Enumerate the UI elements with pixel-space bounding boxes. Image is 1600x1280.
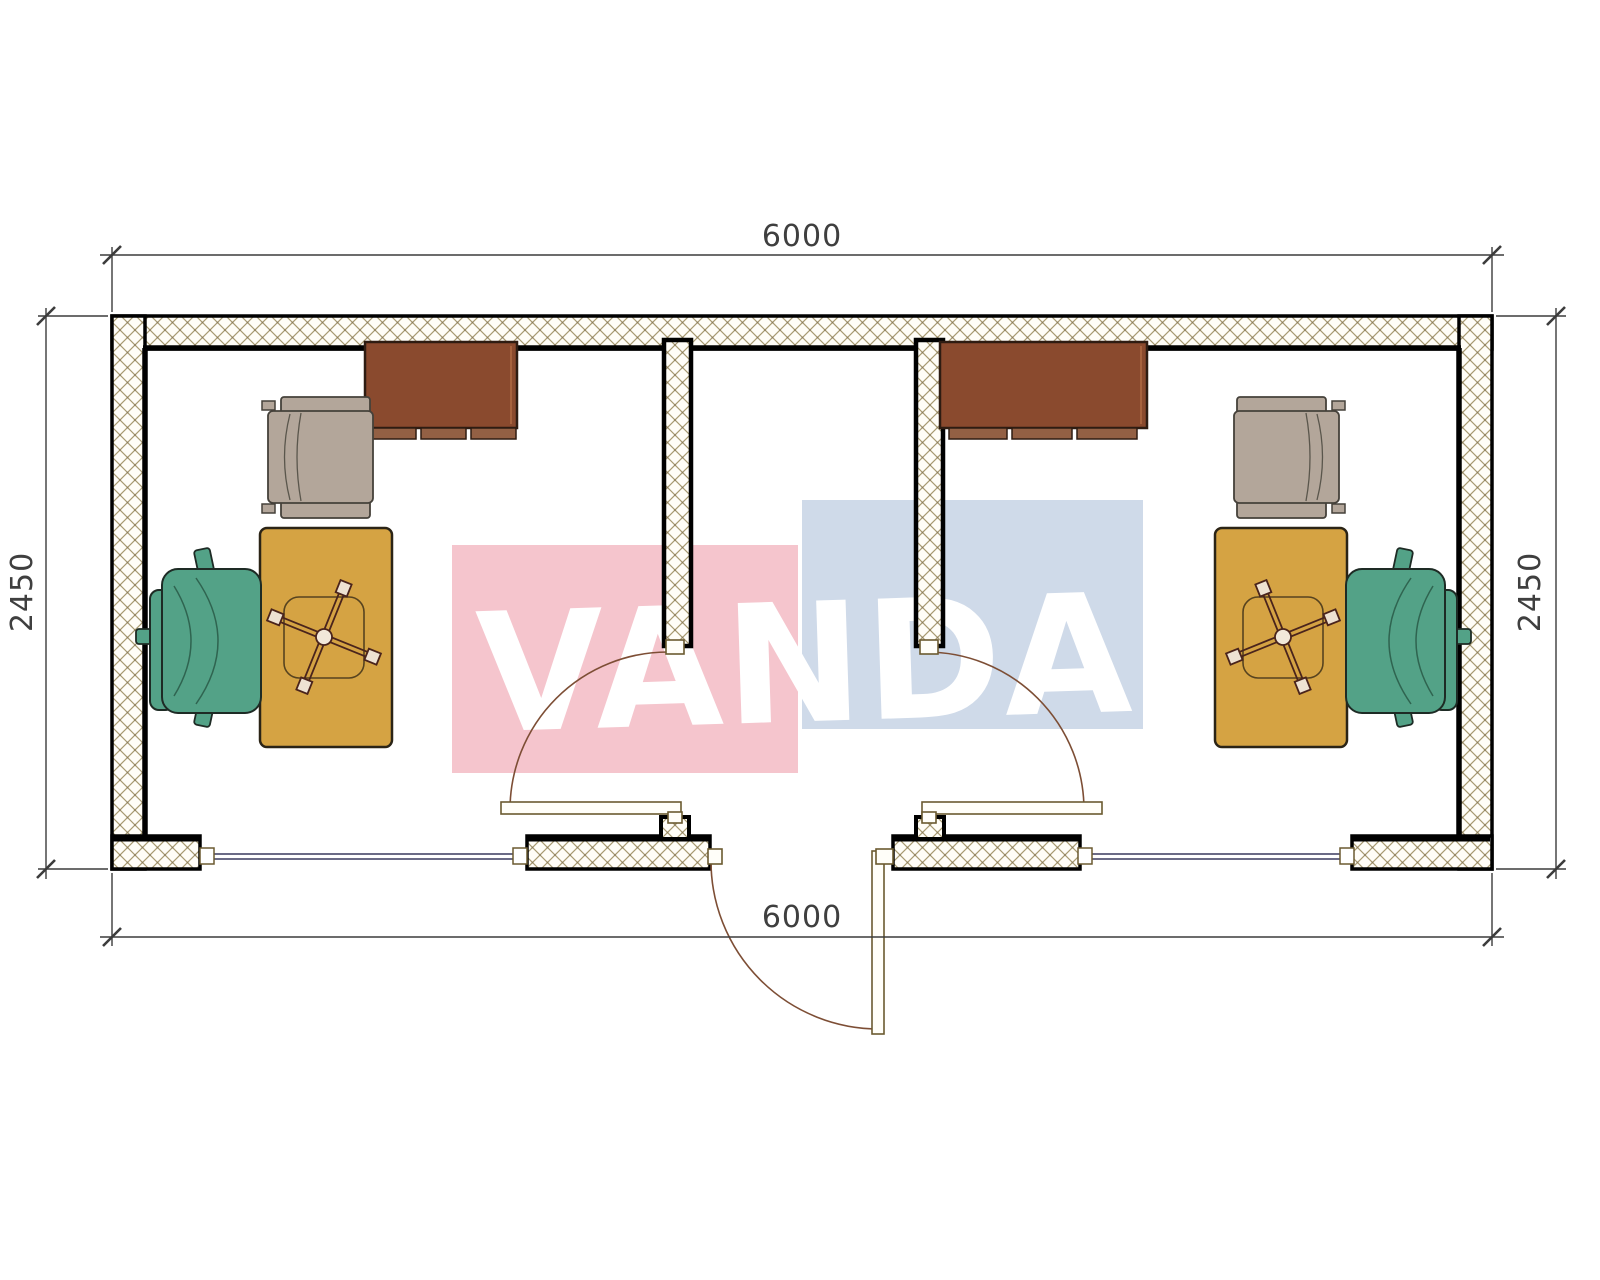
dim-label-bottom: 6000 xyxy=(762,900,842,935)
window-frame xyxy=(200,848,214,864)
dim-label-right: 2450 xyxy=(1513,552,1548,632)
cabinet-drawer xyxy=(1012,428,1072,439)
wall-top xyxy=(112,316,1492,349)
window-frame xyxy=(1340,848,1354,864)
door-frame xyxy=(920,640,938,654)
workstation-left-room xyxy=(136,397,401,747)
window-right-glazing xyxy=(1092,854,1341,859)
cabinet-drawer xyxy=(371,428,416,439)
cabinet-drawer xyxy=(949,428,1007,439)
door-frame xyxy=(666,640,684,654)
wall-cabinet-right xyxy=(940,342,1147,428)
door-swing-arc-entrance xyxy=(711,861,879,1029)
workstation-right-room xyxy=(1206,397,1471,747)
door-leaf-hinge-block xyxy=(668,812,682,823)
wall-right xyxy=(1459,316,1492,869)
window-frame xyxy=(1078,848,1092,864)
watermark: VANDA xyxy=(452,500,1143,773)
door-frame xyxy=(876,849,893,864)
windows xyxy=(200,848,1354,864)
door-leaf-left-room xyxy=(501,802,681,814)
floor-plan-drawing: VANDA xyxy=(0,0,1600,1280)
wall-left xyxy=(112,316,145,869)
door-leaf-hinge-block xyxy=(922,812,936,823)
partition-left xyxy=(664,340,691,646)
floor-plan-canvas: VANDA xyxy=(0,0,1600,1280)
door-leaf-right-room xyxy=(922,802,1102,814)
dim-extension-left xyxy=(38,316,108,869)
door-leaf-entrance xyxy=(872,851,884,1034)
door-frame xyxy=(708,849,722,864)
window-left-glazing xyxy=(213,854,514,859)
window-frame xyxy=(513,848,527,864)
cabinets xyxy=(365,342,1147,439)
watermark-text: VANDA xyxy=(474,558,1137,771)
cabinet-drawer xyxy=(1077,428,1137,439)
cabinet-drawer xyxy=(471,428,516,439)
dim-label-top: 6000 xyxy=(762,219,842,254)
dim-label-left: 2450 xyxy=(5,552,40,632)
cabinet-drawer xyxy=(421,428,466,439)
dim-extension-top xyxy=(112,247,1492,312)
wall-cabinet-left xyxy=(365,342,517,428)
